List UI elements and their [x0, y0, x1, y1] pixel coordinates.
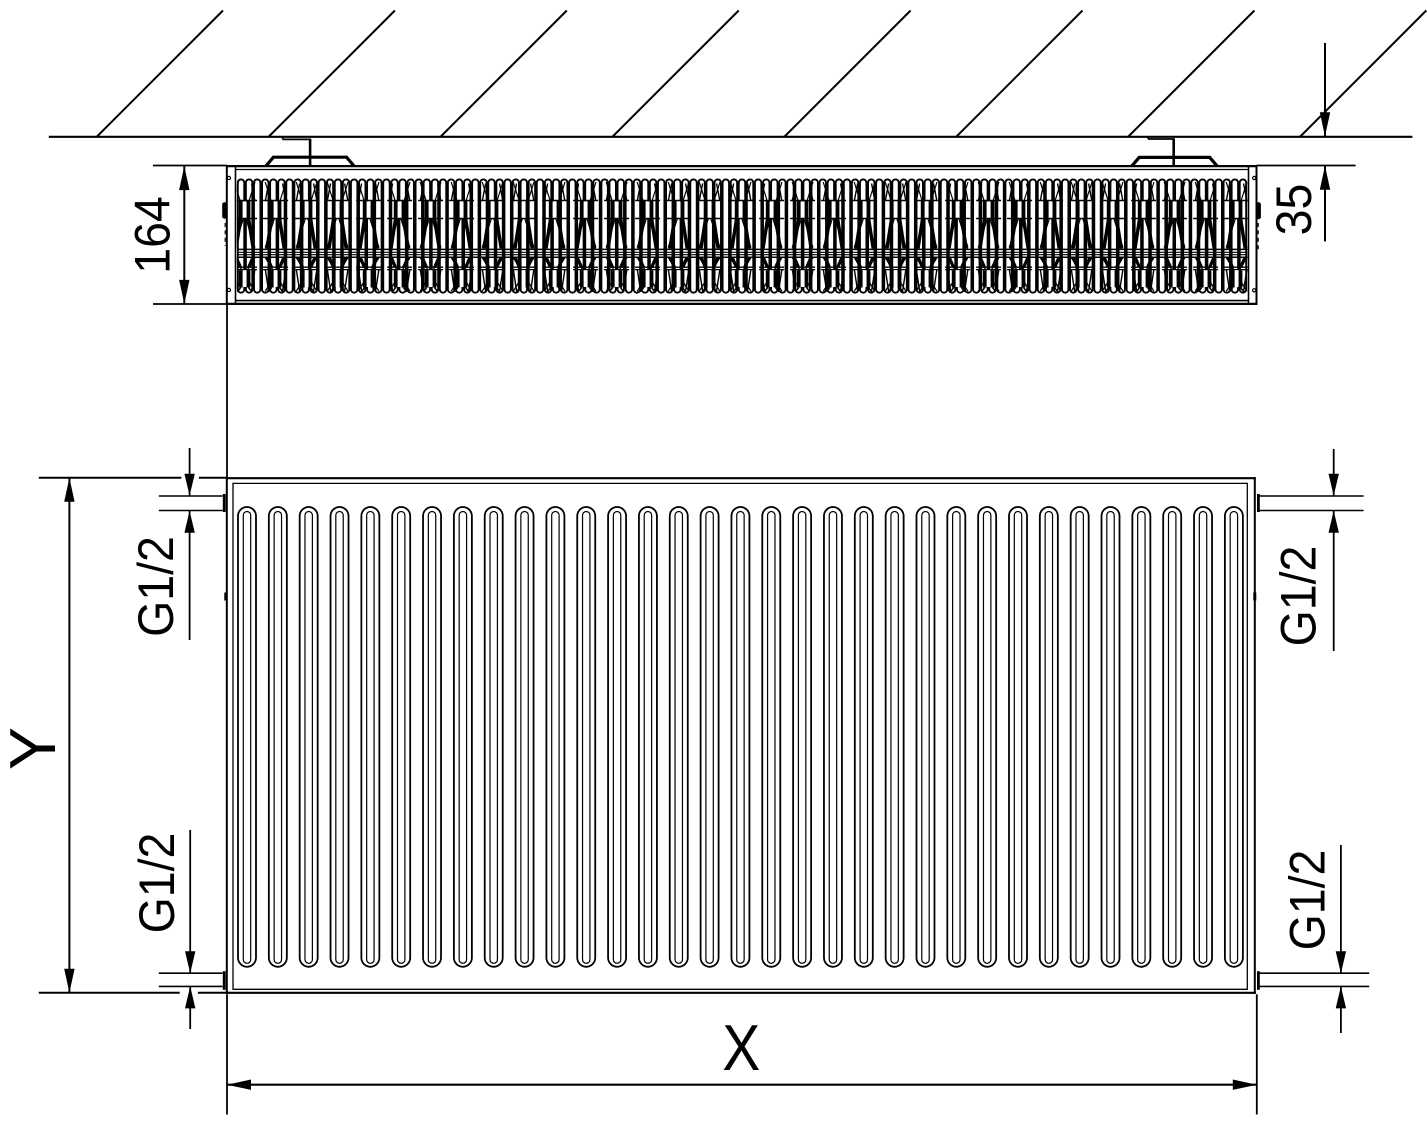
- svg-text:G1/2: G1/2: [1280, 850, 1336, 951]
- svg-text:G1/2: G1/2: [1271, 546, 1327, 647]
- svg-text:Y: Y: [0, 727, 69, 770]
- svg-text:G1/2: G1/2: [128, 536, 184, 637]
- svg-text:X: X: [722, 1012, 760, 1084]
- svg-text:35: 35: [1266, 184, 1322, 236]
- svg-text:164: 164: [125, 196, 181, 274]
- svg-text:G1/2: G1/2: [129, 833, 185, 934]
